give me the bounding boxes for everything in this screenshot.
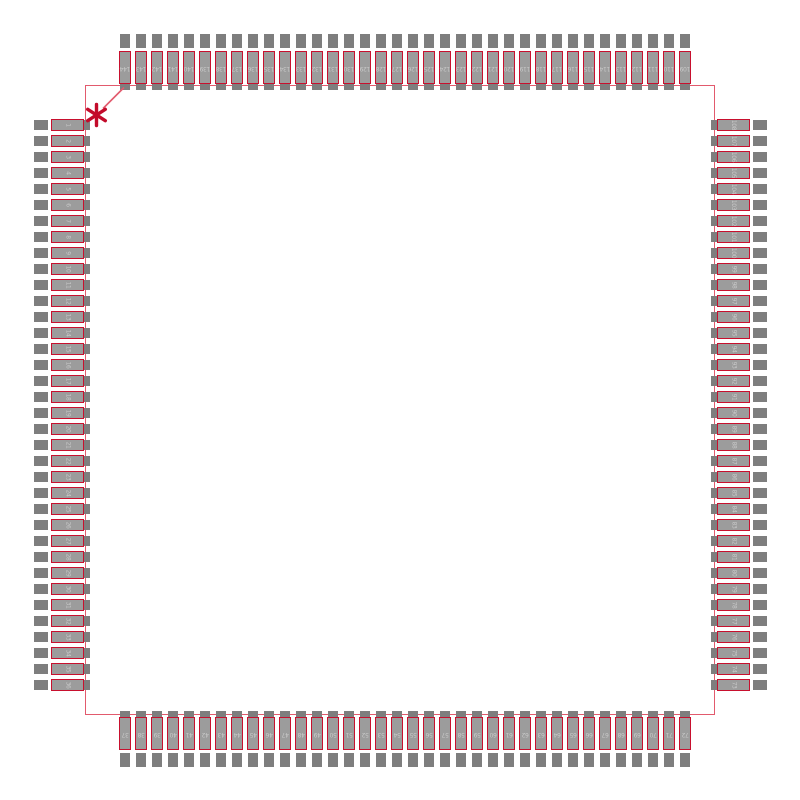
pad-pin-116: 116 <box>565 34 581 90</box>
pad-inner-segment <box>84 472 90 482</box>
pin-outline-box: 55 <box>407 717 419 750</box>
pin-outline-box: 142 <box>151 51 163 84</box>
pad-outer-segment <box>376 753 386 767</box>
pad-outer-segment <box>600 34 610 48</box>
pad-outer-segment <box>536 753 546 767</box>
pin-number: 58 <box>458 731 465 737</box>
pin-number: 108 <box>730 120 736 130</box>
pad-outer-segment <box>34 120 48 130</box>
pin-number: 123 <box>456 65 466 71</box>
pin-number: 110 <box>664 65 674 71</box>
pad-pin-38: 38 <box>133 711 149 767</box>
pin-outline-box: 59 <box>471 717 483 750</box>
pin-number: 138 <box>216 65 226 71</box>
pad-outer-segment <box>753 168 767 178</box>
pin-outline-box: 57 <box>439 717 451 750</box>
pin-outline-box: 2 <box>51 135 84 147</box>
pin-number: 62 <box>522 731 529 737</box>
pad-pin-87: 87 <box>711 453 767 469</box>
pin-outline-box: 103 <box>717 199 750 211</box>
pin-number: 21 <box>65 442 71 449</box>
pad-pin-19: 19 <box>34 405 90 421</box>
pad-inner-segment <box>84 440 90 450</box>
pin-outline-box: 50 <box>327 717 339 750</box>
pin-number: 66 <box>586 731 593 737</box>
pad-outer-segment <box>753 664 767 674</box>
pin-number: 20 <box>65 426 71 433</box>
pad-outer-segment <box>568 34 578 48</box>
pad-pin-72: 72 <box>677 711 693 767</box>
pad-inner-segment <box>552 84 562 90</box>
pin-outline-box: 4 <box>51 167 84 179</box>
pin-outline-box: 38 <box>135 717 147 750</box>
pad-outer-segment <box>34 344 48 354</box>
pin-outline-box: 13 <box>51 311 84 323</box>
pin-outline-box: 42 <box>199 717 211 750</box>
pad-pin-76: 76 <box>711 629 767 645</box>
pad-pin-91: 91 <box>711 389 767 405</box>
pad-inner-segment <box>600 84 610 90</box>
pin-number: 115 <box>584 65 594 71</box>
pad-pin-98: 98 <box>711 277 767 293</box>
pad-outer-segment <box>456 753 466 767</box>
pad-inner-segment <box>84 248 90 258</box>
pad-pin-109: 109 <box>677 34 693 90</box>
pin-outline-box: 104 <box>717 183 750 195</box>
pad-outer-segment <box>472 34 482 48</box>
pad-pin-48: 48 <box>293 711 309 767</box>
pin-outline-box: 44 <box>231 717 243 750</box>
pad-pin-63: 63 <box>533 711 549 767</box>
pin-outline-box: 24 <box>51 487 84 499</box>
pin-number: 31 <box>65 602 71 609</box>
pad-pin-80: 80 <box>711 565 767 581</box>
pin-number: 104 <box>730 184 736 194</box>
pad-pin-13: 13 <box>34 309 90 325</box>
pin-outline-box: 120 <box>503 51 515 84</box>
pad-inner-segment <box>84 376 90 386</box>
pad-outer-segment <box>34 488 48 498</box>
pin-outline-box: 97 <box>717 295 750 307</box>
pin-number: 48 <box>298 731 305 737</box>
pad-pin-10: 10 <box>34 261 90 277</box>
pad-outer-segment <box>632 753 642 767</box>
pin-number: 1 <box>64 123 70 126</box>
pin-number: 76 <box>731 634 737 641</box>
pin-outline-box: 92 <box>717 375 750 387</box>
pad-inner-segment <box>84 536 90 546</box>
pin-outline-box: 91 <box>717 391 750 403</box>
pin-outline-box: 6 <box>51 199 84 211</box>
pad-outer-segment <box>34 584 48 594</box>
pad-pin-99: 99 <box>711 261 767 277</box>
pin-number: 53 <box>378 731 385 737</box>
pin-outline-box: 121 <box>487 51 499 84</box>
pin-outline-box: 135 <box>263 51 275 84</box>
pin-outline-box: 66 <box>583 717 595 750</box>
pad-pin-28: 28 <box>34 549 90 565</box>
pad-pin-120: 120 <box>501 34 517 90</box>
pad-pin-66: 66 <box>581 711 597 767</box>
pad-outer-segment <box>753 184 767 194</box>
pad-pin-45: 45 <box>245 711 261 767</box>
pad-inner-segment <box>84 568 90 578</box>
pad-outer-segment <box>264 34 274 48</box>
pad-pin-3: 3 <box>34 149 90 165</box>
pad-outer-segment <box>472 753 482 767</box>
pin-outline-box: 84 <box>717 503 750 515</box>
pad-pin-7: 7 <box>34 213 90 229</box>
pad-outer-segment <box>753 392 767 402</box>
pad-inner-segment <box>84 264 90 274</box>
pin-outline-box: 113 <box>615 51 627 84</box>
pin-number: 43 <box>218 731 225 737</box>
pin-number: 88 <box>731 442 737 449</box>
pad-outer-segment <box>600 753 610 767</box>
pad-pin-56: 56 <box>421 711 437 767</box>
pad-outer-segment <box>392 753 402 767</box>
pin-outline-box: 61 <box>503 717 515 750</box>
pin-number: 34 <box>65 650 71 657</box>
pin-number: 86 <box>731 474 737 481</box>
pad-pin-68: 68 <box>613 711 629 767</box>
pad-pin-2: 2 <box>34 133 90 149</box>
pad-inner-segment <box>84 504 90 514</box>
pin-number: 2 <box>64 139 70 142</box>
pad-outer-segment <box>753 552 767 562</box>
pad-outer-segment <box>328 753 338 767</box>
pin-outline-box: 63 <box>535 717 547 750</box>
pin-number: 25 <box>65 506 71 513</box>
pin-number: 18 <box>65 394 71 401</box>
pin-number: 130 <box>344 65 354 71</box>
pad-inner-segment <box>84 552 90 562</box>
pad-outer-segment <box>753 632 767 642</box>
pin-row-top: 1441431421411401391381371361351341331321… <box>117 34 693 90</box>
pin-outline-box: 143 <box>135 51 147 84</box>
pin-number: 27 <box>65 538 71 545</box>
pin-outline-box: 23 <box>51 471 84 483</box>
pad-pin-21: 21 <box>34 437 90 453</box>
pad-inner-segment <box>616 84 626 90</box>
pad-pin-139: 139 <box>197 34 213 90</box>
pad-outer-segment <box>753 680 767 690</box>
pad-inner-segment <box>504 84 514 90</box>
pin-number: 45 <box>250 731 257 737</box>
pad-outer-segment <box>34 184 48 194</box>
pad-outer-segment <box>34 216 48 226</box>
pin-outline-box: 137 <box>231 51 243 84</box>
pad-inner-segment <box>84 632 90 642</box>
pin-outline-box: 77 <box>717 615 750 627</box>
pin-number: 79 <box>731 586 737 593</box>
pin-outline-box: 45 <box>247 717 259 750</box>
pad-outer-segment <box>34 264 48 274</box>
pad-outer-segment <box>34 248 48 258</box>
pin-outline-box: 31 <box>51 599 84 611</box>
pad-pin-41: 41 <box>181 711 197 767</box>
pad-pin-29: 29 <box>34 565 90 581</box>
pin-number: 136 <box>248 65 258 71</box>
pad-pin-85: 85 <box>711 485 767 501</box>
pin-outline-box: 119 <box>519 51 531 84</box>
pin-number: 141 <box>168 65 178 71</box>
pad-outer-segment <box>552 753 562 767</box>
pin-number: 56 <box>426 731 433 737</box>
pad-inner-segment <box>84 584 90 594</box>
pad-inner-segment <box>84 232 90 242</box>
pad-pin-30: 30 <box>34 581 90 597</box>
pad-pin-121: 121 <box>485 34 501 90</box>
pin-outline-box: 53 <box>375 717 387 750</box>
pin-number: 52 <box>362 731 369 737</box>
pad-pin-112: 112 <box>629 34 645 90</box>
pad-pin-97: 97 <box>711 293 767 309</box>
pad-inner-segment <box>152 84 162 90</box>
pad-pin-143: 143 <box>133 34 149 90</box>
pad-outer-segment <box>753 280 767 290</box>
pad-pin-39: 39 <box>149 711 165 767</box>
pin-outline-box: 67 <box>599 717 611 750</box>
pad-outer-segment <box>520 34 530 48</box>
pin-number: 140 <box>184 65 194 71</box>
pin-number: 64 <box>554 731 561 737</box>
pin-outline-box: 140 <box>183 51 195 84</box>
pad-pin-104: 104 <box>711 181 767 197</box>
pad-outer-segment <box>504 34 514 48</box>
pad-inner-segment <box>84 168 90 178</box>
pad-outer-segment <box>34 200 48 210</box>
pin-number: 125 <box>424 65 434 71</box>
pad-pin-118: 118 <box>533 34 549 90</box>
pin-number: 93 <box>731 362 737 369</box>
pad-pin-134: 134 <box>277 34 293 90</box>
pin-outline-box: 102 <box>717 215 750 227</box>
pin-outline-box: 15 <box>51 343 84 355</box>
pin-number: 92 <box>731 378 737 385</box>
pin-outline-box: 89 <box>717 423 750 435</box>
pad-inner-segment <box>84 152 90 162</box>
pin-number: 69 <box>634 731 641 737</box>
pin-number: 10 <box>65 266 71 273</box>
pad-outer-segment <box>34 232 48 242</box>
pin-number: 73 <box>731 682 737 689</box>
pad-outer-segment <box>168 34 178 48</box>
package-body-outline <box>85 85 715 715</box>
pin-number: 59 <box>474 731 481 737</box>
pad-pin-144: 144 <box>117 34 133 90</box>
pad-outer-segment <box>753 488 767 498</box>
pad-pin-53: 53 <box>373 711 389 767</box>
pad-outer-segment <box>753 648 767 658</box>
pin-outline-box: 109 <box>679 51 691 84</box>
pad-inner-segment <box>84 600 90 610</box>
pin-outline-box: 16 <box>51 359 84 371</box>
pad-pin-31: 31 <box>34 597 90 613</box>
pin-outline-box: 22 <box>51 455 84 467</box>
pad-inner-segment <box>392 84 402 90</box>
pin-outline-box: 112 <box>631 51 643 84</box>
pin-outline-box: 54 <box>391 717 403 750</box>
pad-outer-segment <box>34 376 48 386</box>
pad-pin-92: 92 <box>711 373 767 389</box>
pad-pin-123: 123 <box>453 34 469 90</box>
pad-outer-segment <box>184 753 194 767</box>
pad-outer-segment <box>34 360 48 370</box>
pad-pin-129: 129 <box>357 34 373 90</box>
pad-pin-36: 36 <box>34 677 90 693</box>
pad-inner-segment <box>664 84 674 90</box>
pad-inner-segment <box>84 520 90 530</box>
pad-outer-segment <box>616 34 626 48</box>
pin-outline-box: 130 <box>343 51 355 84</box>
pad-inner-segment <box>84 120 90 130</box>
pad-outer-segment <box>753 360 767 370</box>
pin-outline-box: 98 <box>717 279 750 291</box>
pad-pin-40: 40 <box>165 711 181 767</box>
pin-number: 90 <box>731 410 737 417</box>
pad-outer-segment <box>616 753 626 767</box>
pad-outer-segment <box>184 34 194 48</box>
pad-outer-segment <box>376 34 386 48</box>
pad-outer-segment <box>753 248 767 258</box>
pin-number: 5 <box>64 187 70 190</box>
pin-number: 60 <box>490 731 497 737</box>
pin-outline-box: 136 <box>247 51 259 84</box>
pin-outline-box: 86 <box>717 471 750 483</box>
pad-outer-segment <box>424 34 434 48</box>
pin-number: 63 <box>538 731 545 737</box>
pad-pin-42: 42 <box>197 711 213 767</box>
pad-inner-segment <box>584 84 594 90</box>
pin-number: 128 <box>376 65 386 71</box>
pad-pin-62: 62 <box>517 711 533 767</box>
pin-column-left: 1234567891011121314151617181920212223242… <box>34 117 90 693</box>
pin-number: 39 <box>154 731 161 737</box>
pad-pin-65: 65 <box>565 711 581 767</box>
pin-number: 133 <box>296 65 306 71</box>
pad-outer-segment <box>34 632 48 642</box>
pin-number: 132 <box>312 65 322 71</box>
pin-outline-box: 124 <box>439 51 451 84</box>
pad-pin-81: 81 <box>711 549 767 565</box>
pad-pin-22: 22 <box>34 453 90 469</box>
pin-number: 44 <box>234 731 241 737</box>
pad-pin-140: 140 <box>181 34 197 90</box>
pin-outline-box: 128 <box>375 51 387 84</box>
pin-outline-box: 65 <box>567 717 579 750</box>
pin-number: 111 <box>648 65 658 71</box>
pad-inner-segment <box>408 84 418 90</box>
pad-pin-93: 93 <box>711 357 767 373</box>
pad-outer-segment <box>753 120 767 130</box>
pin-outline-box: 111 <box>647 51 659 84</box>
pad-outer-segment <box>753 424 767 434</box>
pad-outer-segment <box>753 216 767 226</box>
pad-inner-segment <box>216 84 226 90</box>
pin-outline-box: 33 <box>51 631 84 643</box>
pad-pin-141: 141 <box>165 34 181 90</box>
pin-outline-box: 71 <box>663 717 675 750</box>
pad-outer-segment <box>440 753 450 767</box>
pin-outline-box: 115 <box>583 51 595 84</box>
pad-pin-107: 107 <box>711 133 767 149</box>
pad-pin-96: 96 <box>711 309 767 325</box>
pad-pin-83: 83 <box>711 517 767 533</box>
pin-number: 51 <box>346 731 353 737</box>
pin-outline-box: 1 <box>51 119 84 131</box>
pin-outline-box: 56 <box>423 717 435 750</box>
pin-outline-box: 100 <box>717 247 750 259</box>
pad-outer-segment <box>152 753 162 767</box>
pin-number: 101 <box>730 232 736 242</box>
pad-inner-segment <box>456 84 466 90</box>
pin-outline-box: 79 <box>717 583 750 595</box>
pin-number: 83 <box>731 522 737 529</box>
pin-outline-box: 94 <box>717 343 750 355</box>
pad-outer-segment <box>34 472 48 482</box>
pad-pin-128: 128 <box>373 34 389 90</box>
pad-outer-segment <box>280 34 290 48</box>
pad-pin-94: 94 <box>711 341 767 357</box>
pin-outline-box: 35 <box>51 663 84 675</box>
pad-pin-95: 95 <box>711 325 767 341</box>
pin-outline-box: 82 <box>717 535 750 547</box>
pin-outline-box: 138 <box>215 51 227 84</box>
pin-number: 122 <box>472 65 482 71</box>
pin-number: 137 <box>232 65 242 71</box>
pad-outer-segment <box>296 34 306 48</box>
pin-number: 41 <box>186 731 193 737</box>
pad-inner-segment <box>360 84 370 90</box>
pad-inner-segment <box>84 408 90 418</box>
pad-pin-74: 74 <box>711 661 767 677</box>
pad-pin-100: 100 <box>711 245 767 261</box>
pad-pin-15: 15 <box>34 341 90 357</box>
pad-inner-segment <box>680 84 690 90</box>
pin-number: 54 <box>394 731 401 737</box>
pad-outer-segment <box>680 34 690 48</box>
pad-inner-segment <box>120 84 130 90</box>
pin-number: 72 <box>682 731 689 737</box>
pin-number: 19 <box>65 410 71 417</box>
pad-inner-segment <box>200 84 210 90</box>
pin-outline-box: 87 <box>717 455 750 467</box>
pad-pin-77: 77 <box>711 613 767 629</box>
pad-pin-23: 23 <box>34 469 90 485</box>
pin-outline-box: 17 <box>51 375 84 387</box>
pin-outline-box: 36 <box>51 679 84 691</box>
pad-pin-50: 50 <box>325 711 341 767</box>
pad-pin-122: 122 <box>469 34 485 90</box>
pin-outline-box: 106 <box>717 151 750 163</box>
pin-outline-box: 62 <box>519 717 531 750</box>
pad-outer-segment <box>408 34 418 48</box>
pin-number: 134 <box>280 65 290 71</box>
pin-number: 14 <box>65 330 71 337</box>
pin-outline-box: 48 <box>295 717 307 750</box>
pad-outer-segment <box>34 552 48 562</box>
pad-pin-8: 8 <box>34 229 90 245</box>
pad-pin-61: 61 <box>501 711 517 767</box>
pad-pin-43: 43 <box>213 711 229 767</box>
pin-outline-box: 25 <box>51 503 84 515</box>
pad-outer-segment <box>34 648 48 658</box>
pad-outer-segment <box>34 440 48 450</box>
pin-outline-box: 114 <box>599 51 611 84</box>
pin-number: 75 <box>731 650 737 657</box>
pin-number: 30 <box>65 586 71 593</box>
